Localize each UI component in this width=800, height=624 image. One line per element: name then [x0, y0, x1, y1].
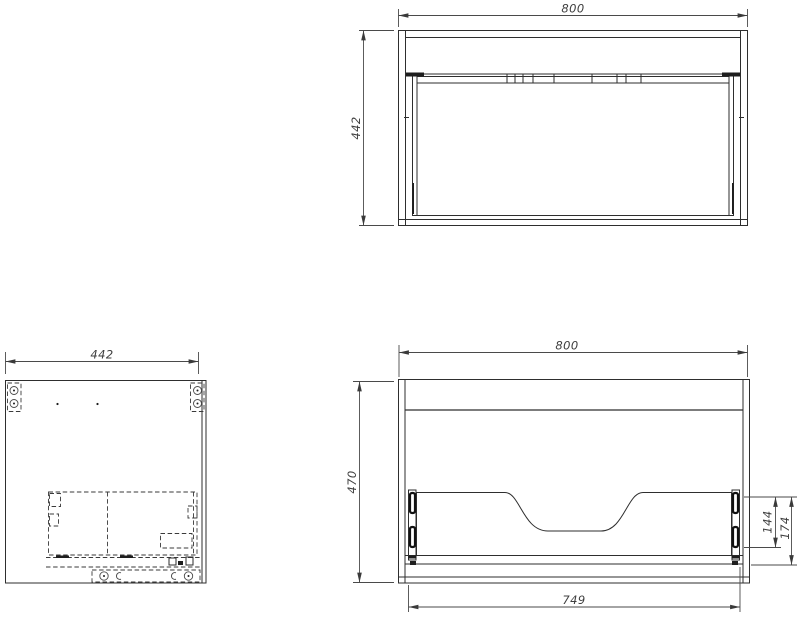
dimension-label: 144	[761, 510, 775, 533]
slide-clip-icon	[733, 493, 738, 513]
front-view-opening-dimension: 749	[409, 567, 741, 612]
dimension-label: 442	[90, 348, 113, 362]
front-view-carcass	[399, 380, 750, 584]
dimension-label: 442	[349, 116, 363, 139]
side-panel-outline	[6, 381, 207, 584]
top-view-depth-dimension: 442	[349, 31, 394, 226]
slide-housing-hidden	[49, 492, 198, 555]
left-slide-rail-mark	[412, 183, 414, 214]
hidden-slide-assembly	[49, 492, 198, 555]
panel-cutout-outline	[417, 493, 732, 556]
dimension-label: 800	[555, 339, 578, 353]
dimension-label: 470	[345, 470, 359, 493]
right-corner-bracket	[722, 73, 740, 77]
carcass-outline	[399, 31, 748, 226]
top-view-drawer-box	[406, 73, 740, 216]
left-drawer-slide	[409, 490, 417, 565]
slide-clip-icon	[733, 527, 738, 547]
dowel-marks	[56, 403, 98, 405]
left-corner-bracket	[406, 73, 424, 77]
slide-clip-icon	[410, 493, 415, 513]
back-rail-slot-ticks	[507, 75, 641, 83]
top-view-carcass	[399, 31, 748, 226]
top-view-width-dimension: 800	[399, 2, 748, 28]
dimension-label: 174	[778, 516, 792, 539]
right-drawer-slide	[732, 490, 740, 565]
drawing-sheet: 800 442	[0, 0, 800, 624]
side-view-depth-dimension: 442	[6, 348, 199, 375]
front-view: 800 470	[345, 339, 797, 613]
slide-clip-icon	[410, 527, 415, 547]
hidden-runner-rail	[46, 556, 200, 568]
dimension-label: 749	[562, 593, 585, 607]
slide-bracket-hidden	[161, 534, 193, 549]
drawer-back-rail	[417, 74, 729, 83]
clip-icon	[171, 573, 176, 580]
right-slide-rail-mark	[732, 183, 734, 214]
drawer-back-panel	[417, 493, 732, 556]
dimension-label: 800	[561, 2, 584, 16]
front-view-height-dimension: 470	[345, 382, 394, 583]
clip-icon	[116, 573, 121, 580]
side-panel	[6, 381, 207, 584]
cam-fittings-top-left	[8, 383, 22, 412]
top-view: 800 442	[349, 2, 748, 226]
front-view-width-dimension: 800	[399, 339, 748, 378]
hidden-bottom-fittings	[92, 570, 200, 582]
side-view: 442	[6, 348, 207, 584]
technical-drawing: 800 442	[0, 0, 800, 624]
